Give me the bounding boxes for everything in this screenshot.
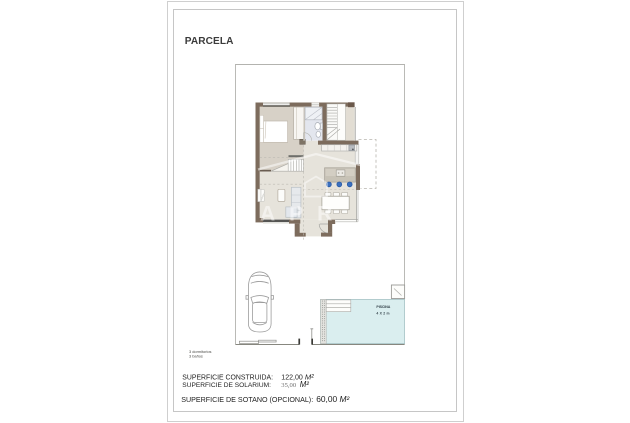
svg-text:60,00 M²: 60,00 M²	[316, 394, 350, 404]
svg-text:3 baños: 3 baños	[189, 353, 203, 358]
svg-text:SUPERFICIE DE SOTANO (OPCIONAL: SUPERFICIE DE SOTANO (OPCIONAL):	[181, 396, 313, 404]
svg-text:PARCELA: PARCELA	[185, 36, 234, 47]
svg-text:122,00 M²: 122,00 M²	[281, 373, 314, 382]
svg-text:M²: M²	[300, 380, 309, 389]
svg-text:APR: APR	[260, 203, 346, 226]
svg-text:4 X 2 m: 4 X 2 m	[376, 311, 389, 315]
svg-text:SUPERFICIE CONSTRUIDA:: SUPERFICIE CONSTRUIDA:	[182, 375, 273, 382]
svg-text:35,00: 35,00	[281, 382, 297, 389]
svg-text:SUPERFICIE DE SOLARIUM:: SUPERFICIE DE SOLARIUM:	[182, 382, 271, 389]
svg-text:PISCINA: PISCINA	[376, 305, 390, 309]
